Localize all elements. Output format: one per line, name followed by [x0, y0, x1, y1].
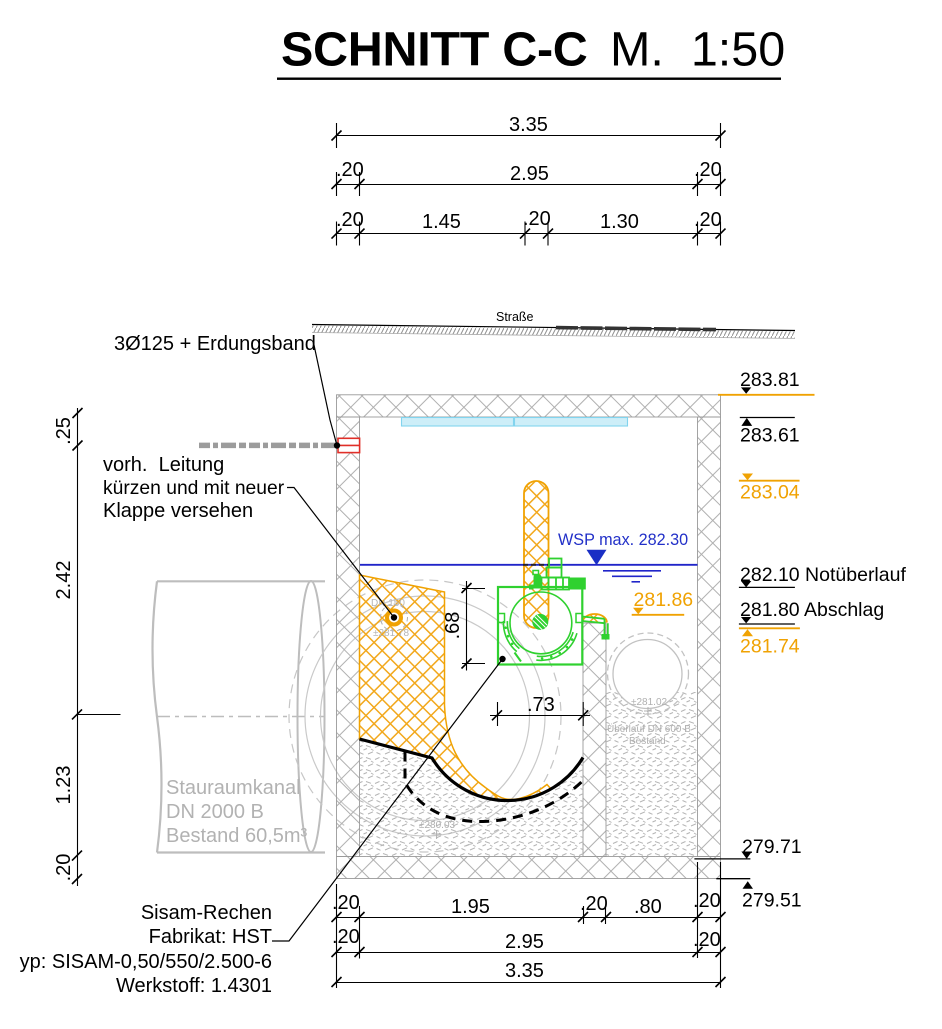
svg-text:282.10 Notüberlauf: 282.10 Notüberlauf — [740, 564, 906, 586]
svg-text:SCHNITT C-C: SCHNITT C-C — [281, 23, 588, 77]
svg-text:DN 150: DN 150 — [371, 598, 405, 609]
svg-text:281.80 Abschlag: 281.80 Abschlag — [740, 599, 884, 621]
svg-text:±281.02: ±281.02 — [631, 697, 668, 708]
svg-text:.20: .20 — [693, 890, 721, 912]
svg-text:1.45: 1.45 — [422, 211, 461, 233]
svg-text:279.71: 279.71 — [742, 836, 802, 858]
svg-text:3.35: 3.35 — [505, 960, 544, 982]
svg-text:.20: .20 — [693, 929, 721, 951]
svg-text:1.23: 1.23 — [53, 766, 75, 805]
svg-text:.80: .80 — [634, 896, 662, 918]
svg-text:2.95: 2.95 — [505, 931, 544, 953]
svg-text:Überlauf DN 600 B: Überlauf DN 600 B — [607, 723, 691, 735]
svg-text:kürzen und mit neuer: kürzen und mit neuer — [103, 478, 285, 499]
svg-text:.20: .20 — [53, 854, 75, 882]
svg-text:Straße: Straße — [496, 310, 534, 324]
svg-text:2.95: 2.95 — [510, 163, 549, 185]
svg-text:.20: .20 — [332, 926, 360, 948]
svg-text:±281.78: ±281.78 — [373, 628, 410, 639]
svg-text:3.35: 3.35 — [509, 114, 548, 136]
svg-text:±280.03: ±280.03 — [419, 820, 456, 831]
svg-text:Fabrikat: HST: Fabrikat: HST — [149, 926, 272, 948]
svg-text:1.30: 1.30 — [600, 211, 639, 233]
svg-text:283.04: 283.04 — [740, 481, 800, 503]
svg-text:.20: .20 — [336, 209, 364, 231]
svg-text:281.74: 281.74 — [740, 635, 800, 657]
svg-text:Bestand: Bestand — [629, 736, 666, 747]
svg-text:.20: .20 — [332, 892, 360, 914]
svg-text:.25: .25 — [53, 417, 75, 445]
svg-text:283.61: 283.61 — [740, 425, 800, 447]
svg-text:.20: .20 — [694, 159, 722, 181]
svg-text:WSP max. 282.30: WSP max. 282.30 — [558, 531, 688, 549]
svg-text:.20: .20 — [336, 159, 364, 181]
svg-text:2.42: 2.42 — [53, 561, 75, 600]
svg-text:Stauraumkanal: Stauraumkanal — [166, 777, 301, 799]
svg-text:yp: SISAM-0,50/550/2.500-6: yp: SISAM-0,50/550/2.500-6 — [20, 951, 272, 973]
svg-text:279.51: 279.51 — [742, 890, 802, 912]
svg-text:3Ø125 + Erdungsband: 3Ø125 + Erdungsband — [114, 333, 316, 355]
svg-text:283.81: 283.81 — [740, 369, 800, 391]
svg-text:vorh. Leitung: vorh. Leitung — [103, 454, 224, 476]
svg-text:.20: .20 — [580, 893, 608, 915]
svg-text:1.95: 1.95 — [451, 896, 490, 918]
svg-text:Werkstoff: 1.4301: Werkstoff: 1.4301 — [116, 975, 272, 997]
svg-text:Sisam-Rechen: Sisam-Rechen — [141, 902, 272, 924]
svg-text:Bestand 60,5m³: Bestand 60,5m³ — [166, 825, 308, 847]
svg-text:.68: .68 — [442, 612, 464, 640]
svg-text:.20: .20 — [523, 208, 551, 230]
svg-text:.73: .73 — [527, 694, 555, 716]
svg-text:Klappe versehen: Klappe versehen — [103, 500, 253, 522]
svg-text:DN 2000 B: DN 2000 B — [166, 801, 264, 823]
svg-text:.20: .20 — [694, 209, 722, 231]
svg-text:M. 1:50: M. 1:50 — [610, 23, 785, 77]
